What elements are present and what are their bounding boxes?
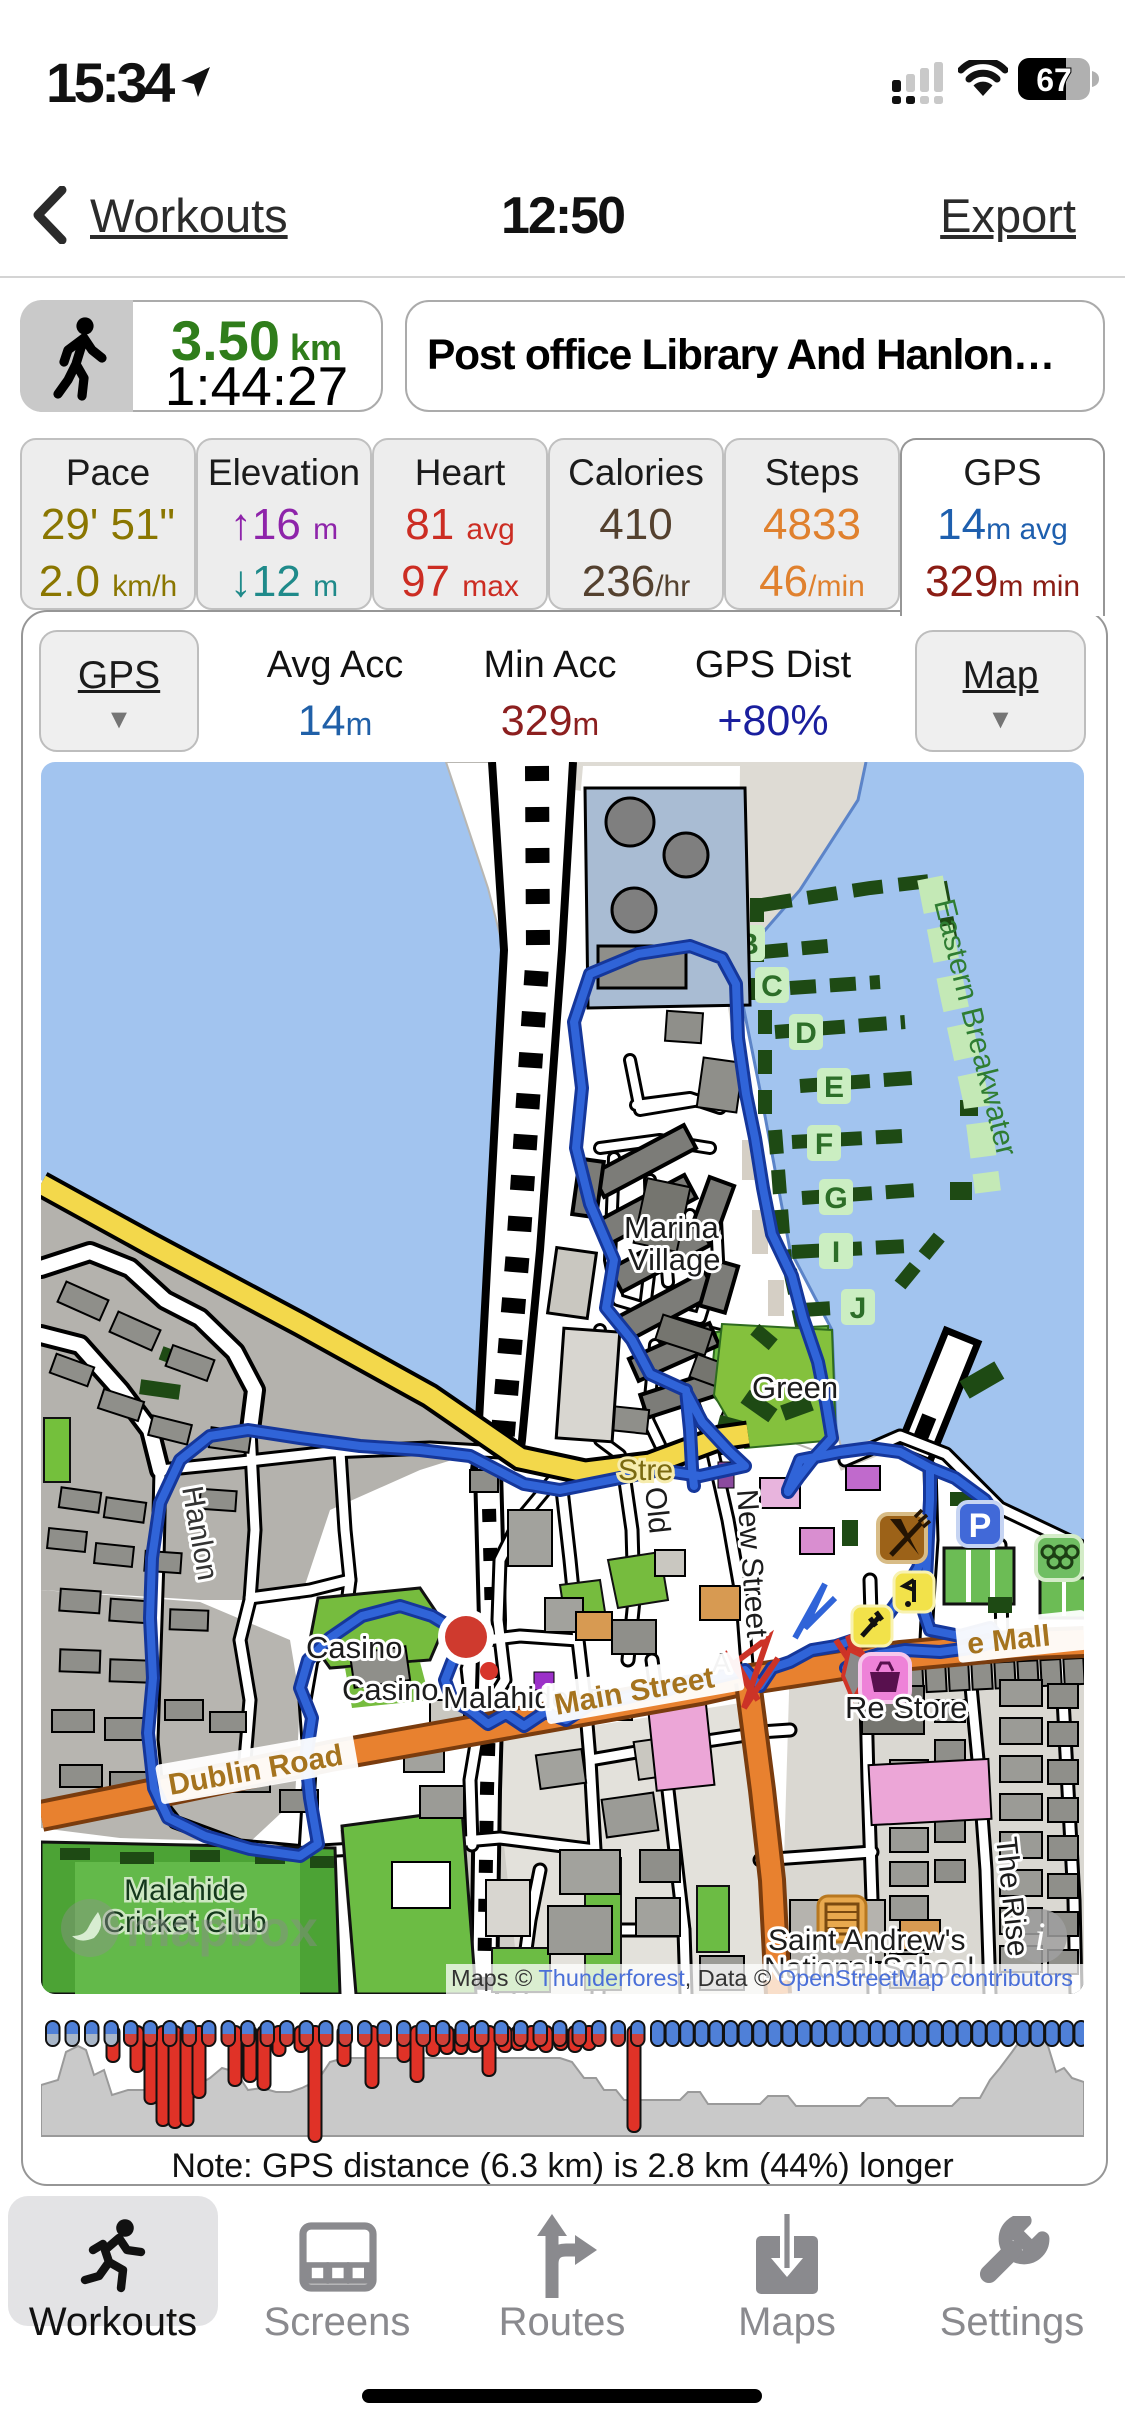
svg-text:i: i bbox=[1034, 1914, 1045, 1959]
svg-text:Casino: Casino bbox=[342, 1672, 439, 1707]
svg-text:Green: Green bbox=[752, 1370, 838, 1405]
svg-text:I: I bbox=[832, 1236, 840, 1269]
svg-text:J: J bbox=[850, 1292, 867, 1325]
svg-text:F: F bbox=[815, 1128, 833, 1161]
svg-text:C: C bbox=[761, 970, 783, 1003]
svg-text:Maps © Thunderforest, Data © O: Maps © Thunderforest, Data © OpenStreetM… bbox=[451, 1965, 1073, 1991]
svg-text:67: 67 bbox=[1036, 62, 1072, 98]
svg-text:Re Store: Re Store bbox=[845, 1690, 967, 1725]
svg-text:P: P bbox=[969, 1507, 992, 1545]
svg-text:Casino: Casino bbox=[306, 1630, 403, 1665]
svg-text:Old: Old bbox=[638, 1485, 676, 1535]
svg-text:E: E bbox=[824, 1071, 844, 1104]
svg-text:Stre: Stre bbox=[618, 1454, 673, 1487]
svg-text:Marina: Marina bbox=[624, 1210, 720, 1245]
svg-text:mapbox: mapbox bbox=[126, 1901, 318, 1957]
svg-text:G: G bbox=[824, 1182, 847, 1215]
svg-text:Village: Village bbox=[628, 1242, 721, 1277]
svg-text:D: D bbox=[795, 1017, 817, 1050]
